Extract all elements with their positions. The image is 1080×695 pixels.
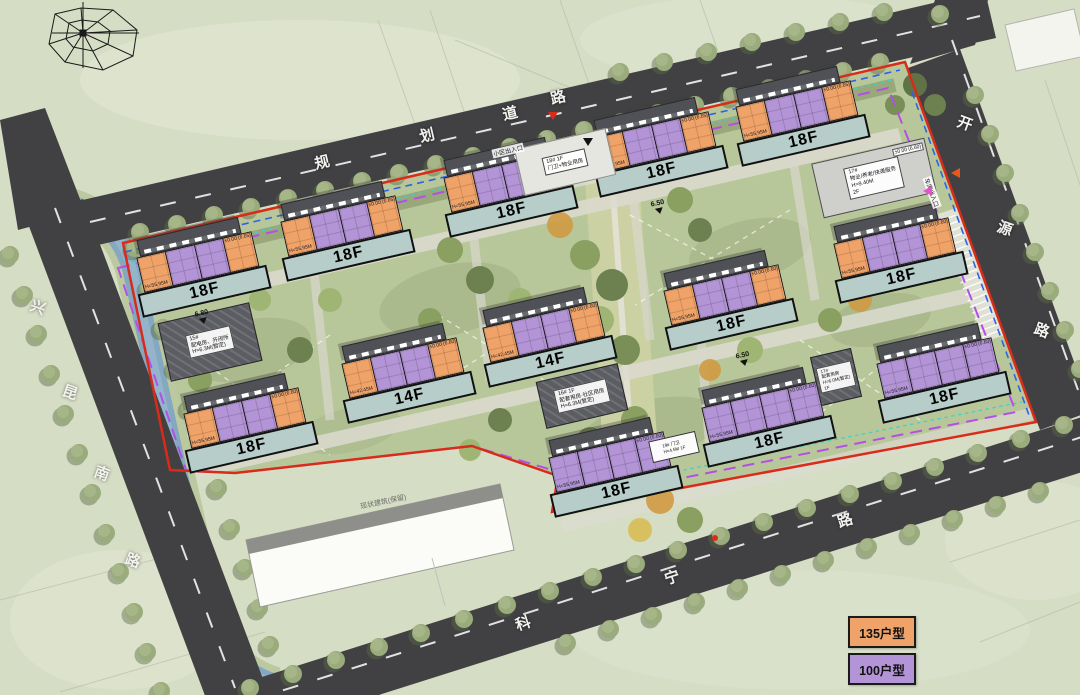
site-plan: 规 划 道 路 开 源 路 兴 昆 南 路 科 宁 路 H=55.95M ±0.…: [0, 0, 1080, 695]
community-room-label: 16# 1F配套用房·社区用房H=6.3M(暂定): [553, 378, 611, 414]
legend-item-135: 135户型: [848, 616, 916, 648]
road-level-marker: [548, 112, 558, 125]
legend-item-100: 100户型: [848, 653, 916, 685]
gatehouse-label: 18# 1F门卫+物业用房: [541, 148, 588, 175]
south-gate-label: 19# 门卫H=4.5M 1F: [659, 437, 690, 456]
service-building-label: 17#物业/养老/快递服务 H=9.40M2F: [844, 156, 905, 199]
site-entry-arrow: [946, 168, 960, 178]
unit-type-legend: 135户型 100户型: [848, 616, 916, 690]
garage-entry-arrow: [918, 186, 932, 196]
power-station-label: 15#配电房、开闭所H=6.3M(暂定): [185, 325, 236, 359]
support-room-label: 17#配套用房 H=6.0M(暂定)1F: [816, 360, 857, 394]
service-building-elevation: ±0.00 (6.60): [892, 142, 924, 157]
entrance-arrow: [583, 138, 593, 151]
boundary-marker-dot: [712, 535, 718, 541]
